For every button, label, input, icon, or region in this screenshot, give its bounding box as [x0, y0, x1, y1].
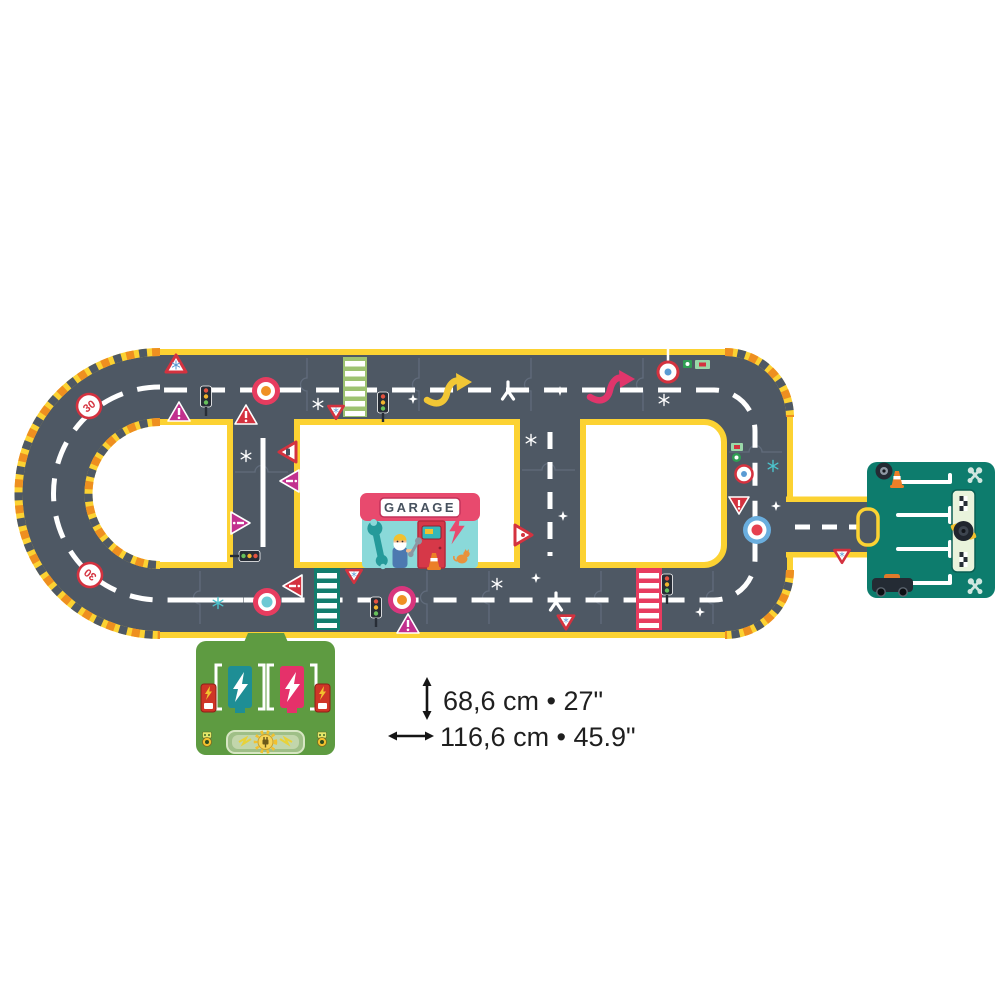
- dimension-arrow-vertical: [423, 677, 432, 720]
- charging-bay-pink: [280, 666, 304, 713]
- crosswalk-teal: [314, 568, 340, 630]
- roundabout-icon-red-orange: [252, 377, 280, 405]
- medal-icon: [203, 732, 212, 747]
- mini-sign-icon: [731, 443, 743, 451]
- mini-sign-icon: [695, 360, 710, 369]
- garage-sign-text: GARAGE: [384, 500, 456, 515]
- charging-sign: [227, 731, 304, 753]
- charging-station-piece: [196, 633, 335, 755]
- product-photo-road-puzzle: 30 30: [0, 0, 1000, 1000]
- medal-icon: [318, 732, 327, 747]
- no-entry-sign-icon: [736, 466, 753, 483]
- charging-post-icon: [201, 684, 216, 712]
- mini-sign-icon: [732, 453, 741, 462]
- mini-sign-icon: [683, 360, 692, 368]
- crosswalk-green: [343, 357, 367, 417]
- checkered-flag-icon: [960, 496, 968, 511]
- roundabout-icon-red-teal: [253, 588, 281, 616]
- no-entry-sign-icon: [658, 362, 678, 382]
- charging-bay-teal: [228, 666, 252, 713]
- garage-building: GARAGE: [360, 493, 480, 571]
- roundabout-icon-magenta-orange: [388, 586, 416, 614]
- tire-service-sign: [950, 490, 977, 572]
- dimension-height-label: 68,6 cm • 27": [443, 686, 603, 716]
- checkered-flag-icon: [960, 552, 968, 567]
- parking-piece: [867, 462, 995, 598]
- dimension-width-label: 116,6 cm • 45.9": [440, 722, 636, 752]
- charging-post-icon: [315, 684, 330, 712]
- road-puzzle-scene: 30 30: [0, 0, 1000, 1000]
- branch-road: [786, 497, 868, 563]
- crosswalk-pink: [636, 568, 662, 630]
- tire-icon: [876, 463, 893, 480]
- roundabout-icon-blue-red: [743, 516, 771, 544]
- dimension-arrow-horizontal: [388, 732, 434, 741]
- puzzle-knob: [858, 509, 878, 545]
- dimension-annotations: 68,6 cm • 27" 116,6 cm • 45.9": [388, 677, 636, 752]
